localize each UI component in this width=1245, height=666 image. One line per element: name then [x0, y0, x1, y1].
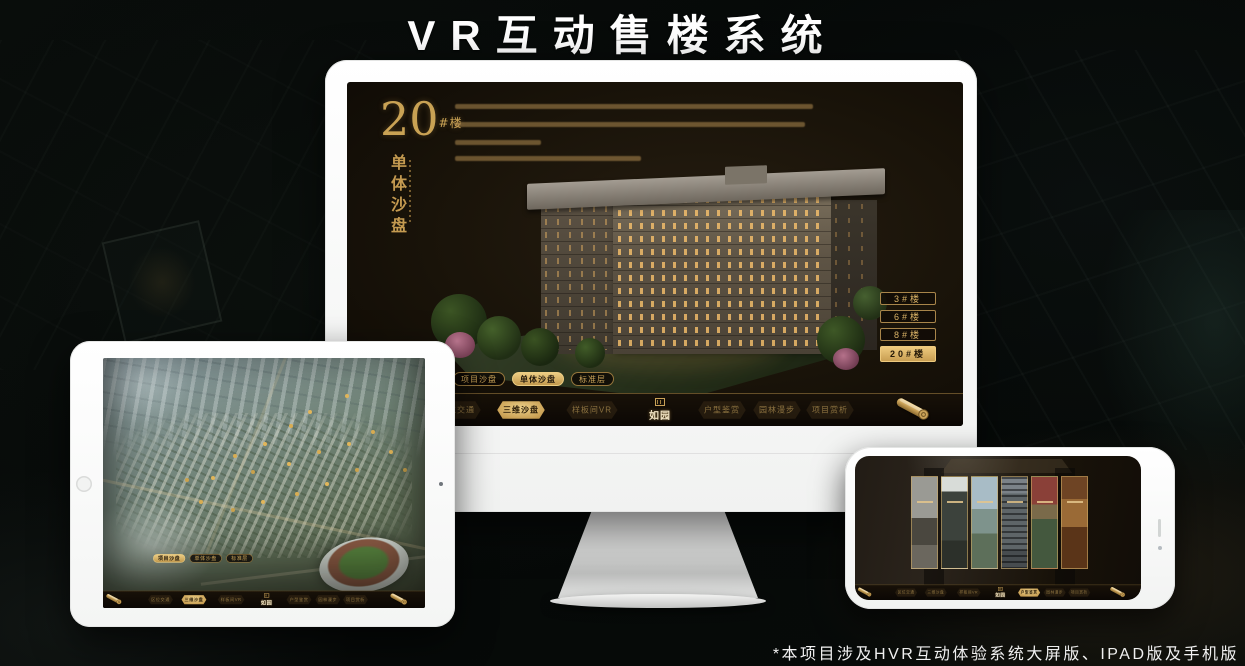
building-roof-tower [725, 165, 767, 184]
nav-item-unit-plans[interactable]: 户型鉴赏 [1017, 588, 1042, 597]
seal-icon [264, 593, 269, 597]
floor-button-20[interactable]: 20#楼 [880, 346, 936, 362]
nav-item-garden-walk[interactable]: 园林漫步 [1042, 588, 1067, 597]
description-text-line [455, 122, 805, 127]
footnote-text: *本项目涉及HVR互动体验系统大屏版、IPAD版及手机版 [773, 640, 1239, 664]
bottom-nav-bar: 区位交通 三维沙盘 样板间VR 如园 户型鉴赏 园林漫步 项目赏析 [855, 585, 1141, 600]
mode-tab-standard-floor[interactable]: 标准层 [571, 372, 614, 386]
speaker-icon [1158, 519, 1161, 537]
vr-scene-card[interactable] [911, 476, 938, 569]
mode-tabs: 项目沙盘 单体沙盘 标准层 [453, 372, 614, 386]
nav-item-garden-walk[interactable]: 园林漫步 [750, 401, 804, 420]
description-text-line [455, 140, 541, 145]
floor-button-8[interactable]: 8#楼 [880, 328, 936, 341]
floor-button-6[interactable]: 6#楼 [880, 310, 936, 323]
phone-screen: 区位交通 三维沙盘 样板间VR 如园 户型鉴赏 园林漫步 项目赏析 [855, 456, 1141, 600]
seal-icon [998, 587, 1003, 591]
monitor-stand-neck [558, 510, 758, 598]
nav-item-project-overview[interactable]: 项目赏析 [341, 595, 369, 605]
page-canvas: VR互动售楼系统 *本项目涉及HVR互动体验系统大屏版、IPAD版及手机版 20… [0, 0, 1245, 666]
mode-tab-project-sandtable[interactable]: 项目沙盘 [153, 554, 185, 563]
building-model-illustration [425, 166, 887, 400]
screen-vignette [103, 358, 425, 608]
vr-scene-card[interactable] [941, 476, 968, 569]
vr-scene-gallery [911, 476, 1088, 569]
background-certificate-glow [121, 239, 203, 324]
vr-scene-card[interactable] [971, 476, 998, 569]
brand-logo-text: 如园 [995, 591, 1005, 598]
tree-illustration [575, 338, 605, 368]
mode-tab-project-sandtable[interactable]: 项目沙盘 [453, 372, 505, 386]
tree-illustration [477, 316, 521, 360]
vr-scene-card[interactable] [1001, 476, 1028, 569]
headline-number-text: 20 [380, 92, 439, 146]
nav-item-location-traffic[interactable]: 区位交通 [894, 588, 919, 597]
vr-scene-card[interactable] [1031, 476, 1058, 569]
scroll-icon[interactable] [104, 593, 125, 607]
page-title: VR互动售楼系统 [0, 2, 1245, 63]
headline-english-caption-bar [409, 160, 411, 224]
nav-item-location-traffic[interactable]: 区位交通 [146, 595, 174, 605]
bottom-nav-bar: 区位交通 三维沙盘 样板间VR 如园 户型鉴赏 园林漫步 项目赏析 [103, 591, 425, 608]
nav-item-project-overview[interactable]: 项目赏析 [1067, 588, 1092, 597]
brand-logo-text: 如园 [261, 598, 272, 606]
floor-button-3[interactable]: 3#楼 [880, 292, 936, 305]
tree-illustration [521, 328, 559, 366]
scroll-icon[interactable] [856, 587, 875, 599]
mode-tab-single-sandtable[interactable]: 单体沙盘 [512, 372, 564, 386]
nav-item-showroom-vr[interactable]: 样板间VR [216, 595, 246, 605]
seal-icon [655, 398, 665, 406]
floor-selector: 3#楼 6#楼 8#楼 20#楼 [880, 292, 936, 362]
brand-logo: 如园 [995, 587, 1005, 598]
monitor-stand-base [550, 594, 766, 608]
description-text-line [455, 104, 813, 109]
scroll-icon[interactable] [388, 593, 411, 607]
nav-item-showroom-vr[interactable]: 样板间VR [563, 401, 621, 420]
phone-device: 区位交通 三维沙盘 样板间VR 如园 户型鉴赏 园林漫步 项目赏析 [845, 447, 1175, 609]
nav-item-garden-walk[interactable]: 园林漫步 [314, 595, 342, 605]
brand-logo-text: 如园 [649, 407, 671, 422]
mode-tabs: 项目沙盘 单体沙盘 标准层 [153, 554, 253, 563]
scroll-icon[interactable] [1108, 587, 1128, 599]
nav-item-3d-sandtable[interactable]: 三维沙盘 [180, 595, 208, 605]
mode-tab-single-sandtable[interactable]: 单体沙盘 [190, 554, 222, 563]
brand-logo: 如园 [649, 398, 671, 422]
description-text-line [455, 156, 641, 161]
tablet-device: 项目沙盘 单体沙盘 标准层 区位交通 三维沙盘 样板间VR 如园 户型鉴赏 园林… [70, 341, 455, 627]
mode-tab-standard-floor[interactable]: 标准层 [226, 554, 253, 563]
nav-item-showroom-vr[interactable]: 样板间VR [955, 588, 982, 597]
headline-number: 20#楼 [380, 96, 463, 142]
nav-item-3d-sandtable[interactable]: 三维沙盘 [494, 401, 548, 420]
vr-scene-card[interactable] [1061, 476, 1088, 569]
camera-icon [1158, 546, 1162, 550]
floor-lines [613, 192, 831, 354]
nav-item-project-overview[interactable]: 项目赏析 [803, 401, 857, 420]
interior-gate-roof [941, 459, 1073, 473]
tablet-screen: 项目沙盘 单体沙盘 标准层 区位交通 三维沙盘 样板间VR 如园 户型鉴赏 园林… [103, 358, 425, 608]
nav-item-unit-plans[interactable]: 户型鉴赏 [695, 401, 749, 420]
building-front-face [613, 192, 831, 354]
brand-logo: 如园 [261, 593, 272, 606]
nav-item-3d-sandtable[interactable]: 三维沙盘 [923, 588, 948, 597]
camera-icon [439, 482, 443, 486]
blossom-tree-illustration [833, 348, 859, 370]
scroll-icon[interactable] [892, 397, 936, 423]
headline-subtitle: 单体沙盘 [385, 154, 409, 238]
home-button[interactable] [76, 476, 92, 492]
nav-item-unit-plans[interactable]: 户型鉴赏 [285, 595, 313, 605]
